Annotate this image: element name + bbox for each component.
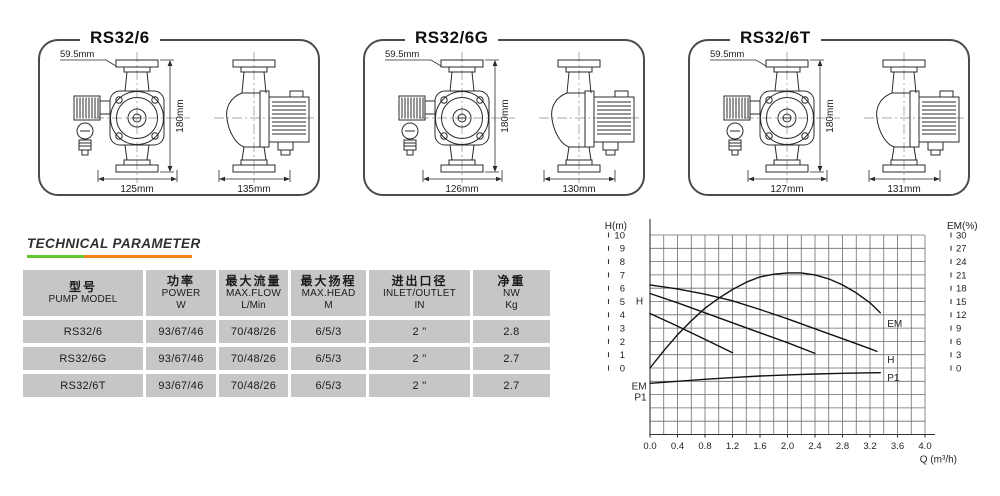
left-tick-label: 8 — [620, 257, 625, 268]
curve-P1 — [650, 373, 880, 384]
curve-label-em: EM — [632, 382, 647, 393]
dim-label-offset: 59.5mm — [60, 49, 94, 60]
pump-drawing-rs32-6: 59.5mm 180mm 125mm 135mm — [38, 39, 320, 196]
underline-orange-segment — [84, 255, 192, 258]
cell-model: RS32/6 — [23, 320, 143, 343]
x-tick-label: 3.6 — [891, 441, 904, 452]
x-tick-label: 1.2 — [726, 441, 739, 452]
curve-label-em: EM — [887, 319, 902, 330]
right-tick-label: 3 — [956, 350, 961, 361]
dim-label-front-width: 127mm — [770, 184, 803, 195]
pump-drawing-rs32-6g: 59.5mm 180mm 126mm 130mm — [363, 39, 645, 196]
left-tick-label: 6 — [620, 284, 625, 295]
cell-net-weight: 2.8 — [473, 320, 550, 343]
cell-model: RS32/6T — [23, 374, 143, 397]
pump-box-rs32-6: RS32/6 59.5mm 180mm 125mm 135mm — [38, 39, 320, 196]
cell-inlet-outlet: 2 " — [369, 320, 470, 343]
col-header-power: 功率 POWER W — [146, 270, 216, 316]
cell-max-flow: 70/48/26 — [219, 320, 288, 343]
x-axis-title: Q (m³/h) — [920, 455, 957, 466]
left-tick-label: 0 — [620, 363, 625, 374]
right-tick-label: 0 — [956, 363, 961, 374]
left-tick-label: 9 — [620, 244, 625, 255]
curve-label-h: H — [636, 297, 643, 308]
left-tick-label: 1 — [620, 350, 625, 361]
cell-power: 93/67/46 — [146, 374, 216, 397]
cell-max-head: 6/5/3 — [291, 347, 366, 370]
col-header-max-flow: 最大流量 MAX.FLOW L/Min — [219, 270, 288, 316]
left-tick-label: 2 — [620, 337, 625, 348]
left-tick-label: 5 — [620, 297, 625, 308]
cell-power: 93/67/46 — [146, 347, 216, 370]
x-tick-label: 2.0 — [781, 441, 794, 452]
cell-inlet-outlet: 2 " — [369, 374, 470, 397]
right-tick-label: 21 — [956, 270, 967, 281]
right-tick-label: 12 — [956, 310, 967, 321]
curve-label-h: H — [887, 355, 894, 366]
cell-inlet-outlet: 2 " — [369, 347, 470, 370]
dim-label-side-width: 130mm — [562, 184, 595, 195]
col-header-inlet-outlet: 进出口径 INLET/OUTLET IN — [369, 270, 470, 316]
cell-max-head: 6/5/3 — [291, 320, 366, 343]
x-tick-label: 0.4 — [671, 441, 684, 452]
left-tick-label: 4 — [620, 310, 625, 321]
dim-label-side-width: 131mm — [887, 184, 920, 195]
x-tick-label: 2.4 — [808, 441, 821, 452]
heading-underline — [27, 255, 192, 258]
right-tick-label: 6 — [956, 337, 961, 348]
dim-label-offset: 59.5mm — [385, 49, 419, 60]
left-tick-label: 10 — [614, 230, 625, 241]
pump-box-rs32-6t: RS32/6T 59.5mm 180mm 127mm 131mm — [688, 39, 970, 196]
x-tick-label: 1.6 — [753, 441, 766, 452]
x-tick-label: 2.8 — [836, 441, 849, 452]
curve-EM — [650, 273, 880, 368]
underline-green-segment — [27, 255, 84, 258]
right-tick-label: 30 — [956, 230, 967, 241]
right-tick-label: 18 — [956, 284, 967, 295]
left-tick-label: 7 — [620, 270, 625, 281]
col-header-pump-model: 型号 PUMP MODEL — [23, 270, 143, 316]
technical-parameter-table: 型号 PUMP MODEL 功率 POWER W 最大流量 MAX.FLOW L… — [23, 270, 550, 397]
dim-label-front-width: 125mm — [120, 184, 153, 195]
dim-label-offset: 59.5mm — [710, 49, 744, 60]
x-tick-label: 4.0 — [918, 441, 931, 452]
x-tick-label: 0.0 — [643, 441, 656, 452]
cell-net-weight: 2.7 — [473, 374, 550, 397]
curve-label-p1: P1 — [634, 392, 647, 403]
dim-label-height: 180mm — [500, 99, 511, 132]
cell-model: RS32/6G — [23, 347, 143, 370]
datasheet-page: RS32/6 59.5mm 180mm 125mm 135mm RS32/6G … — [0, 0, 1000, 496]
dim-label-height: 180mm — [175, 99, 186, 132]
x-tick-label: 0.8 — [698, 441, 711, 452]
dim-label-height: 180mm — [825, 99, 836, 132]
col-header-max-head: 最大扬程 MAX.HEAD M — [291, 270, 366, 316]
performance-chart: 0.00.40.81.21.62.02.42.83.23.64.0Q (m³/h… — [592, 203, 1000, 495]
cell-max-head: 6/5/3 — [291, 374, 366, 397]
curve-label-p1: P1 — [887, 373, 900, 384]
right-tick-label: 9 — [956, 324, 961, 335]
col-header-net-weight: 净重 NW Kg — [473, 270, 550, 316]
x-tick-label: 3.2 — [863, 441, 876, 452]
cell-power: 93/67/46 — [146, 320, 216, 343]
left-tick-label: 3 — [620, 324, 625, 335]
dim-label-side-width: 135mm — [237, 184, 270, 195]
cell-max-flow: 70/48/26 — [219, 374, 288, 397]
pump-box-rs32-6g: RS32/6G 59.5mm 180mm 126mm 130mm — [363, 39, 645, 196]
cell-net-weight: 2.7 — [473, 347, 550, 370]
section-heading: TECHNICAL PARAMETER — [27, 236, 201, 251]
cell-max-flow: 70/48/26 — [219, 347, 288, 370]
right-tick-label: 27 — [956, 244, 967, 255]
dim-label-front-width: 126mm — [445, 184, 478, 195]
pump-drawing-rs32-6t: 59.5mm 180mm 127mm 131mm — [688, 39, 970, 196]
right-tick-label: 24 — [956, 257, 967, 268]
right-tick-label: 15 — [956, 297, 967, 308]
